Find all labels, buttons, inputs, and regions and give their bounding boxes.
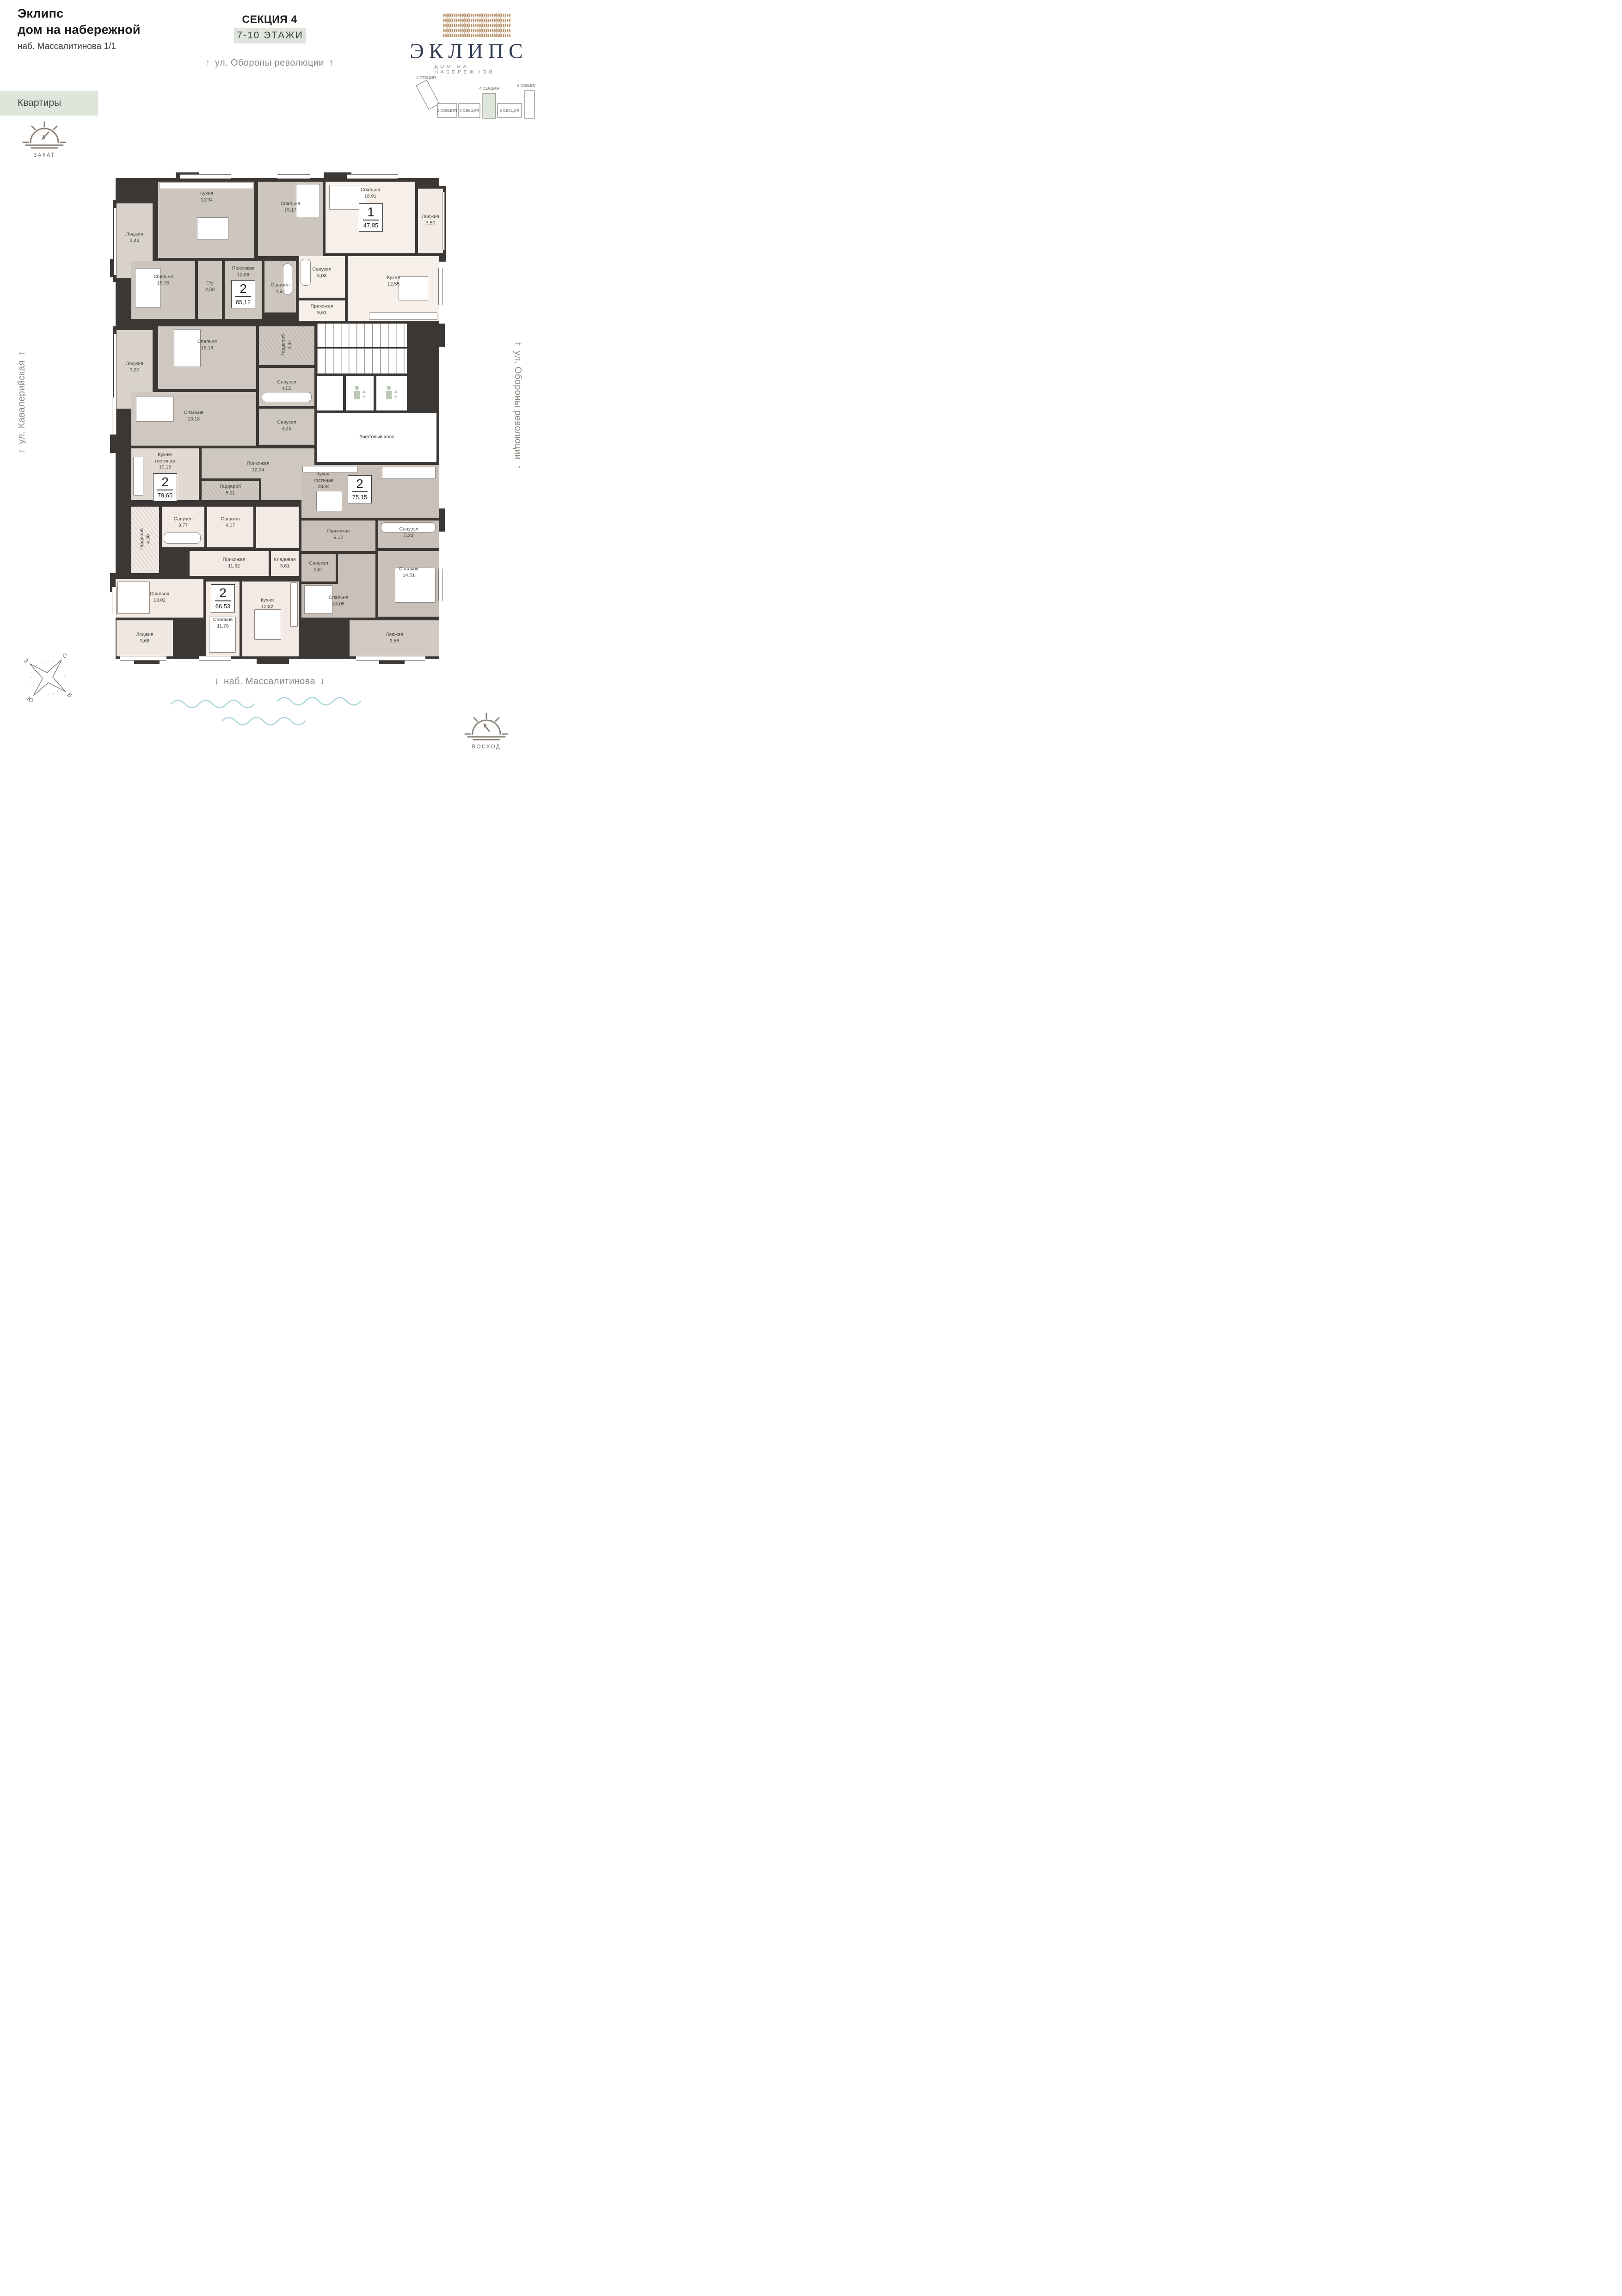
room-label: Кладовая3,61 <box>271 557 298 569</box>
wall <box>110 435 116 453</box>
room-label: Спальня14,51 <box>389 566 429 578</box>
room-label: Санузел5,03 <box>302 266 342 279</box>
window <box>199 656 231 661</box>
dining-table <box>316 491 342 511</box>
room-label: Санузел4,45 <box>267 419 307 432</box>
room-label: Спальня18,91 <box>350 187 390 199</box>
stairs-landing-line <box>317 347 407 349</box>
room-hall-66-53 <box>256 507 299 548</box>
room-label: Кухня12,55 <box>374 275 413 287</box>
window <box>277 174 310 179</box>
room-label: Спальня13,05 <box>319 594 358 607</box>
wall <box>257 659 289 664</box>
wall <box>439 508 445 532</box>
room-label: Санузел4,55 <box>267 379 307 392</box>
room-label: Гардероб5,11 <box>210 484 250 496</box>
window <box>438 569 443 601</box>
elevator-icon <box>352 385 368 402</box>
kitchen-counter <box>369 312 437 320</box>
apartment-badge-47-85[interactable]: 1 47,85 <box>359 203 383 232</box>
room-label: Спальня15,78 <box>143 274 183 286</box>
room-label: Санузел4,94 <box>265 282 295 294</box>
window <box>112 587 117 615</box>
elevator-hall-label: Лифтовый холл <box>351 434 402 441</box>
window <box>356 656 425 661</box>
down-arrow-icon: ↓ <box>209 676 224 686</box>
dining-table <box>197 217 228 239</box>
room-label: Спальня15,18 <box>187 338 227 351</box>
wall <box>301 582 338 584</box>
bed-furniture <box>136 397 174 422</box>
compass-north-label: С <box>61 651 69 660</box>
elevator-icon <box>384 385 399 402</box>
room-label: Лоджия3,50 <box>418 214 442 226</box>
window <box>438 268 443 305</box>
room-label: Санузел5,23 <box>389 526 429 539</box>
kitchen-counter <box>159 183 253 189</box>
wall <box>439 324 445 347</box>
compass-south-label: Ю <box>26 695 35 704</box>
stairs <box>317 324 407 373</box>
room-label: Санузел3,77 <box>163 516 203 528</box>
sofa <box>133 457 143 496</box>
kitchen-counter <box>290 582 298 627</box>
room-bedroom1-79-65 <box>158 326 256 389</box>
room-label: Кухня-гостиная28,84 <box>307 471 341 490</box>
compass-east-label: В <box>66 691 74 699</box>
elevator-1 <box>346 376 374 410</box>
apartment-badge-66-53[interactable]: 2 66,53 <box>211 584 235 612</box>
sofa <box>382 467 436 479</box>
room-label: Спальня13,18 <box>174 410 214 422</box>
room-label: С/у2,50 <box>198 280 221 293</box>
room-label: Прихожая11,32 <box>214 557 254 569</box>
room-label: Гардероб4,34 <box>280 325 293 365</box>
room-label: Санузел4,07 <box>210 516 250 528</box>
wall <box>259 478 261 500</box>
window <box>180 174 231 179</box>
compass-west-label: З <box>22 657 30 665</box>
room-label: Кухня12,94 <box>187 190 227 203</box>
room-label: Спальня13,02 <box>140 591 179 603</box>
room-label: Санузел2,61 <box>302 560 335 573</box>
sunrise-label: ВОСХОД <box>472 744 501 750</box>
bathtub <box>262 392 312 402</box>
room-label: Кухня12,82 <box>247 597 287 610</box>
room-label: Прихожая9,12 <box>319 528 358 540</box>
shaft <box>317 376 343 410</box>
street-label-embankment: ↓наб. Массалитинова↓ <box>209 676 330 687</box>
sunrise-icon <box>464 711 509 741</box>
room-label: Лоджия3,46 <box>115 231 154 244</box>
room-label: Лоджия3,30 <box>115 361 154 373</box>
room-label: Спальня11,78 <box>208 617 238 629</box>
river-waves-icon <box>166 696 379 728</box>
elevator-2 <box>376 376 407 410</box>
apartment-badge-79-65[interactable]: 2 79,65 <box>153 473 177 502</box>
compass-icon: С Ю З В <box>17 645 79 710</box>
room-label: Прихожая9,61 <box>302 303 342 316</box>
floor-plan: Кухня12,94 Лоджия3,46 Спальня15,17 Спаль… <box>0 0 541 765</box>
down-arrow-icon: ↓ <box>315 676 330 686</box>
dining-table <box>254 609 281 640</box>
window <box>120 656 166 661</box>
apartment-badge-75-15[interactable]: 2 75,15 <box>348 475 372 503</box>
room-label: Лоджия3,58 <box>375 631 414 644</box>
window <box>347 174 398 179</box>
room-label: Спальня15,17 <box>270 201 310 213</box>
room-label: Кухня-гостиная19,15 <box>148 452 182 471</box>
apartment-badge-65-12[interactable]: 2 65,12 <box>231 280 255 308</box>
page: { "header": { "project_title_line1": "Эк… <box>0 0 541 765</box>
room-label: Лоджия3,68 <box>125 631 165 644</box>
room-label: Гардероб4,30 <box>139 519 151 559</box>
room-label: Прихожая12,06 <box>225 265 261 278</box>
wall <box>336 554 338 584</box>
bathtub <box>164 533 201 544</box>
room-label: Прихожая12,04 <box>238 460 278 473</box>
